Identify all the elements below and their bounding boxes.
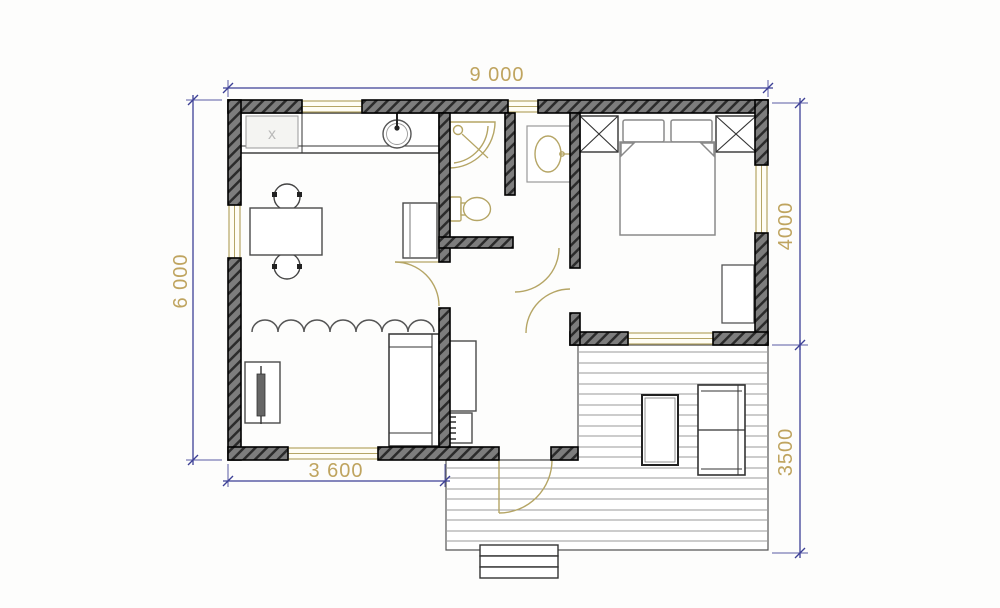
living-area <box>245 320 439 446</box>
wall-segment <box>538 100 768 113</box>
shoe-rack-icon <box>448 413 472 443</box>
wall-segment <box>713 332 768 345</box>
window-right <box>756 165 767 233</box>
dining-chair-bottom-icon <box>272 253 302 279</box>
kitchen-area: x <box>241 113 439 279</box>
wall-segment <box>228 258 241 460</box>
terrace-deck <box>446 345 768 578</box>
toilet-icon <box>450 197 491 221</box>
wall-segment <box>570 313 580 345</box>
wall-segment <box>378 447 499 460</box>
double-bed-icon <box>620 120 715 235</box>
window-living-bottom <box>288 448 378 459</box>
cooktop-marker: x <box>268 126 276 143</box>
fridge-icon <box>403 203 437 258</box>
wall-segment <box>228 100 241 205</box>
wall-segment <box>570 113 580 268</box>
wall-segment <box>439 237 513 248</box>
dimension-top: 9 000 <box>223 64 773 97</box>
wall-segment <box>755 233 768 345</box>
cooktop-icon: x <box>246 116 298 148</box>
hall-area <box>448 341 476 443</box>
wall-segment <box>228 447 288 460</box>
window-left <box>229 205 240 258</box>
window-bedroom-terrace <box>628 333 713 344</box>
wall-segment <box>755 100 768 165</box>
bedroom-dresser-icon <box>722 265 754 323</box>
dimension-label-overall-height: 6 000 <box>170 253 192 308</box>
dimension-right-upper: 4000 <box>772 98 808 350</box>
dimension-label-terrace-depth: 3500 <box>775 428 797 477</box>
wall-segment <box>505 113 515 195</box>
window-bath-top <box>508 101 538 112</box>
deck-steps-icon <box>480 545 558 578</box>
dimension-label-bedroom-depth: 4000 <box>775 202 797 251</box>
bathroom-door-swing-icon <box>515 248 559 292</box>
dimension-label-living-width: 3 600 <box>308 460 363 482</box>
dining-chair-top-icon <box>272 184 302 210</box>
wall-segment <box>551 447 578 460</box>
wall-segment <box>362 100 508 113</box>
closet-right-x-icon <box>716 116 756 152</box>
curtain-divider-icon <box>252 320 434 332</box>
closet-left-x-icon <box>580 116 618 152</box>
window-kitchen-top <box>302 101 362 112</box>
dimension-left: 6 000 <box>170 95 222 465</box>
dimension-label-overall-width: 9 000 <box>469 64 524 86</box>
kitchen-door-swing-icon <box>395 262 439 306</box>
tv-stand-icon <box>245 362 280 424</box>
dimension-bottom: 3 600 <box>223 460 450 487</box>
bedroom-area <box>580 116 756 323</box>
sofa-icon <box>389 334 439 446</box>
lounge-chair-large-icon <box>698 385 745 475</box>
floor-plan-page: x <box>0 0 1000 608</box>
floor-plan-drawing: x <box>0 0 1000 608</box>
dining-table-icon <box>250 208 322 255</box>
bedroom-door-swing-icon <box>526 289 570 333</box>
wall-segment <box>439 308 450 447</box>
dimension-right-lower: 3500 <box>772 340 808 558</box>
lounge-chair-small-icon <box>642 395 678 465</box>
washbasin-icon <box>527 126 572 182</box>
shower-icon <box>450 122 495 168</box>
hall-wardrobe-icon <box>448 341 476 411</box>
